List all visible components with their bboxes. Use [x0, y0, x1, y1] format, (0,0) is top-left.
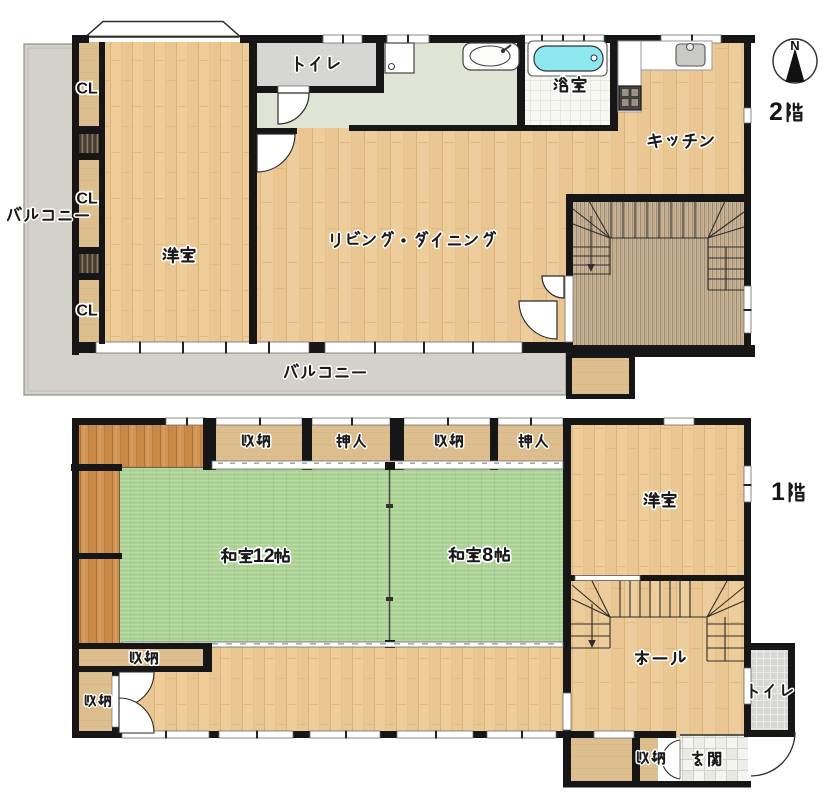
svg-text:CL: CL — [76, 191, 98, 208]
svg-text:N: N — [790, 38, 799, 53]
svg-text:CL: CL — [76, 303, 98, 320]
svg-text:2: 2 — [769, 99, 783, 126]
svg-text:8: 8 — [482, 544, 493, 566]
svg-text:CL: CL — [76, 81, 98, 98]
svg-text:1: 1 — [771, 479, 785, 506]
svg-text:12: 12 — [253, 545, 275, 567]
